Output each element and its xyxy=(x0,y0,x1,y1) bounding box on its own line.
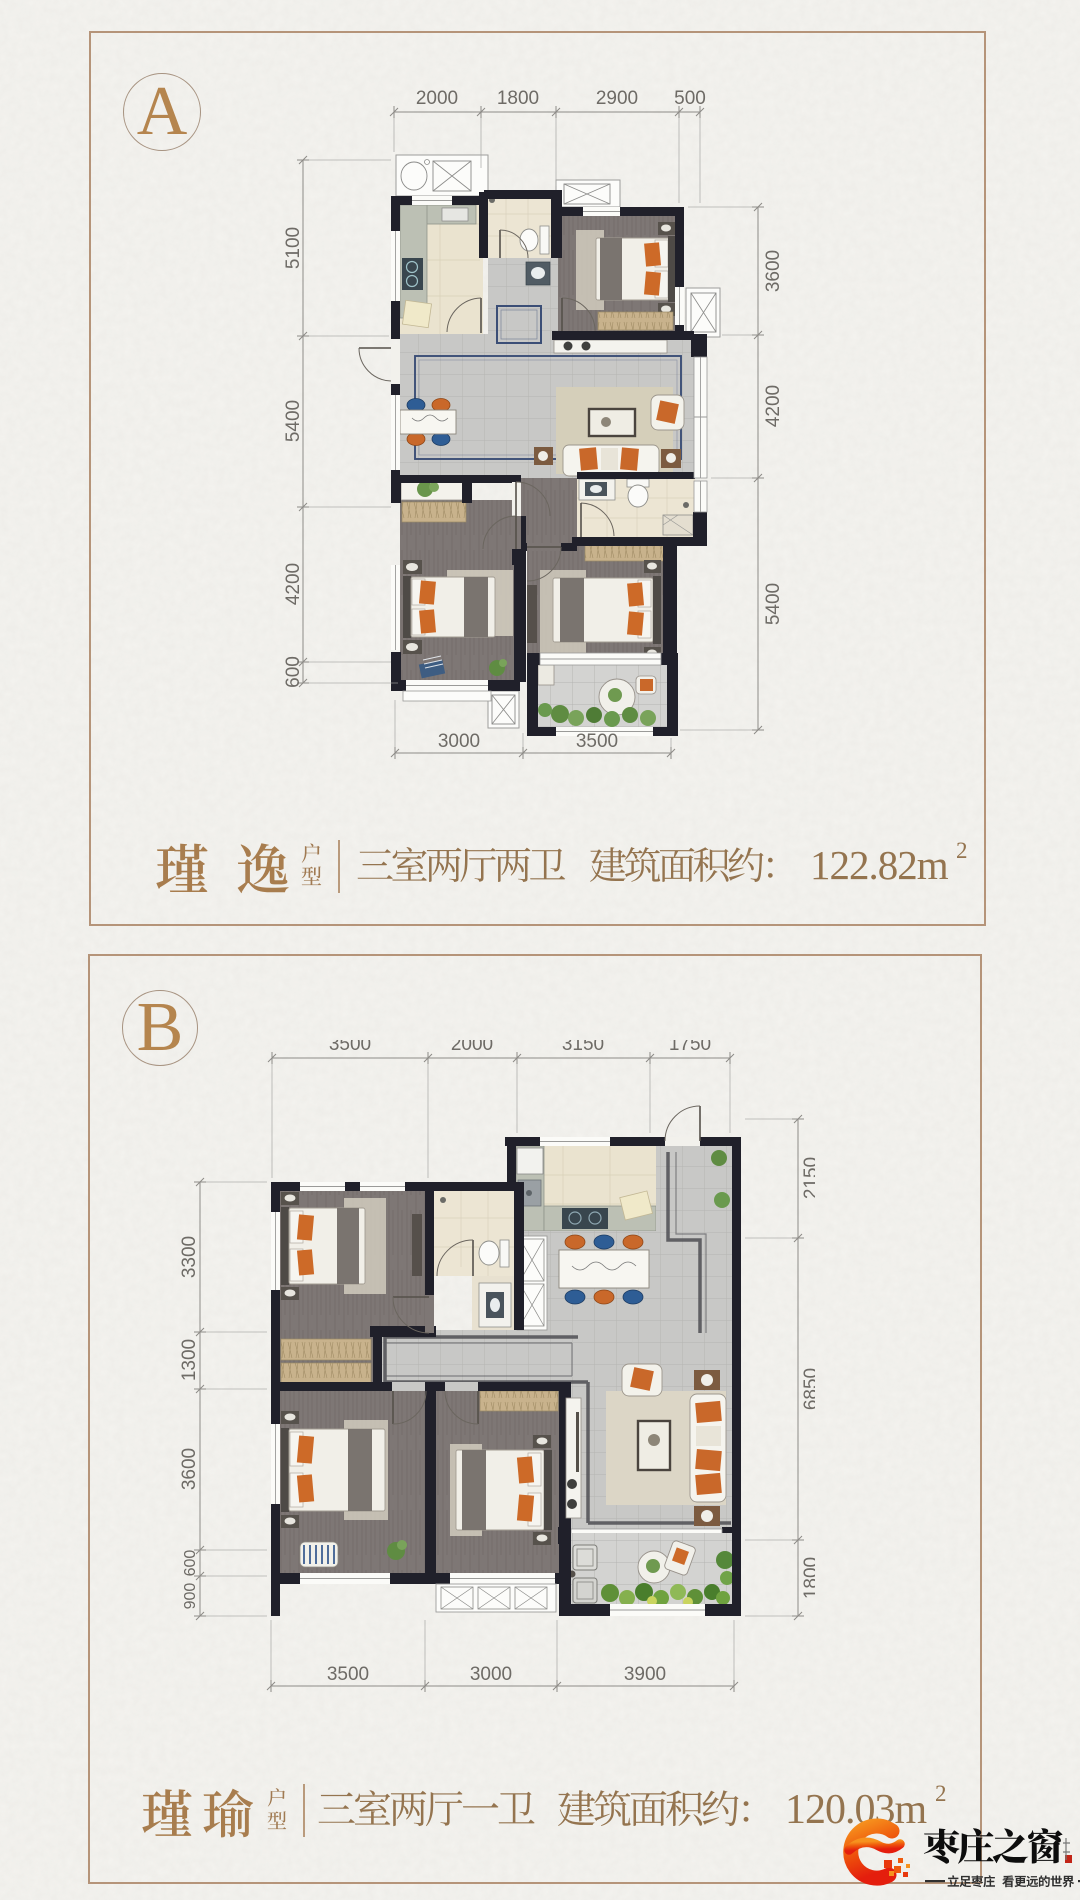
svg-text:1750: 1750 xyxy=(669,1040,711,1055)
svg-text:2150: 2150 xyxy=(801,1157,815,1199)
svg-text:122.82m: 122.82m xyxy=(810,842,949,888)
svg-text:500: 500 xyxy=(674,90,706,109)
svg-text:3500: 3500 xyxy=(576,731,618,752)
svg-text:5400: 5400 xyxy=(763,583,784,625)
svg-text:2000: 2000 xyxy=(451,1040,493,1055)
svg-text:5100: 5100 xyxy=(283,227,304,269)
svg-text:3500: 3500 xyxy=(327,1664,369,1685)
svg-text:2000: 2000 xyxy=(416,90,458,109)
svg-text:6850: 6850 xyxy=(801,1368,815,1410)
svg-text:3900: 3900 xyxy=(624,1664,666,1685)
svg-text:3600: 3600 xyxy=(763,250,784,292)
svg-text:3600: 3600 xyxy=(180,1448,200,1490)
svg-text:4200: 4200 xyxy=(763,385,784,427)
svg-text:3500: 3500 xyxy=(329,1040,371,1055)
svg-text:600: 600 xyxy=(182,1550,199,1577)
svg-text:3300: 3300 xyxy=(180,1236,200,1278)
svg-text:1800: 1800 xyxy=(801,1557,815,1599)
svg-text:5400: 5400 xyxy=(283,400,304,442)
svg-text:2: 2 xyxy=(956,838,968,863)
svg-text:3150: 3150 xyxy=(562,1040,604,1055)
svg-text:3000: 3000 xyxy=(470,1664,512,1685)
svg-text:1300: 1300 xyxy=(180,1339,200,1381)
svg-text:2900: 2900 xyxy=(596,90,638,109)
svg-text:4200: 4200 xyxy=(283,563,304,605)
svg-text:1800: 1800 xyxy=(497,90,539,109)
svg-text:2: 2 xyxy=(935,1781,947,1806)
svg-text:600: 600 xyxy=(283,656,304,688)
svg-text:900: 900 xyxy=(182,1583,199,1610)
svg-text:3000: 3000 xyxy=(438,731,480,752)
